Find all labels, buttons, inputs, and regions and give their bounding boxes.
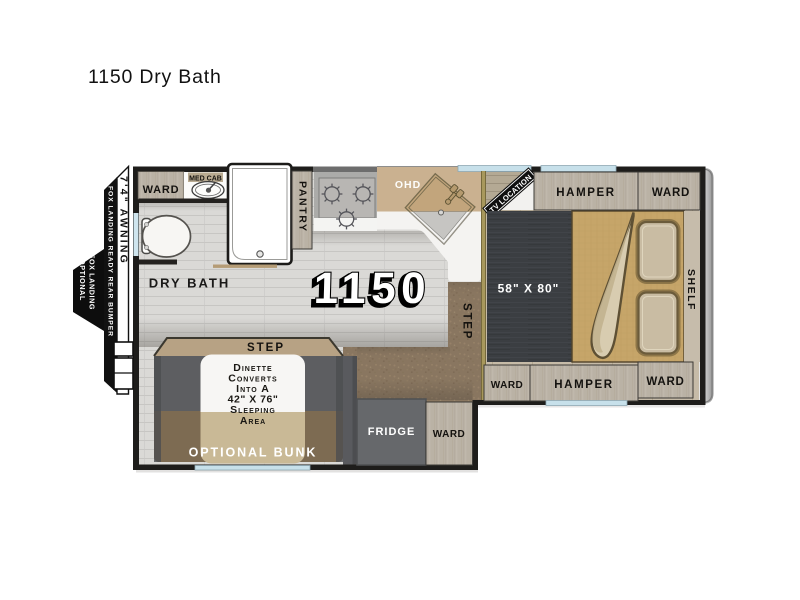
svg-text:WARD: WARD — [652, 187, 690, 199]
svg-text:WARD: WARD — [491, 380, 524, 391]
svg-text:FOX LANDING READY REAR BUMPER: FOX LANDING READY REAR BUMPER — [107, 186, 114, 337]
svg-text:SHELF: SHELF — [685, 269, 697, 311]
svg-text:1150: 1150 — [313, 264, 432, 313]
svg-text:HAMPER: HAMPER — [554, 379, 613, 391]
svg-text:WARD: WARD — [433, 429, 466, 440]
svg-text:OPTIONAL BUNK: OPTIONAL BUNK — [189, 446, 318, 460]
svg-text:Area: Area — [240, 415, 266, 427]
svg-text:DRY BATH: DRY BATH — [149, 276, 230, 291]
svg-text:58" X 80": 58" X 80" — [498, 282, 560, 296]
svg-text:FRIDGE: FRIDGE — [368, 426, 416, 438]
svg-text:PANTRY: PANTRY — [297, 181, 309, 233]
svg-text:HAMPER: HAMPER — [556, 187, 615, 199]
svg-text:7'4" AWNING: 7'4" AWNING — [118, 176, 130, 265]
svg-text:WARD: WARD — [143, 184, 180, 196]
svg-text:1150 Dry Bath: 1150 Dry Bath — [88, 66, 222, 88]
svg-text:STEP: STEP — [461, 303, 473, 340]
svg-text:FOX LANDING: FOX LANDING — [88, 254, 97, 310]
svg-text:STEP: STEP — [247, 342, 285, 354]
svg-text:WARD: WARD — [646, 376, 684, 388]
svg-text:OHD: OHD — [395, 179, 421, 191]
svg-text:OPTIONAL: OPTIONAL — [78, 259, 87, 301]
